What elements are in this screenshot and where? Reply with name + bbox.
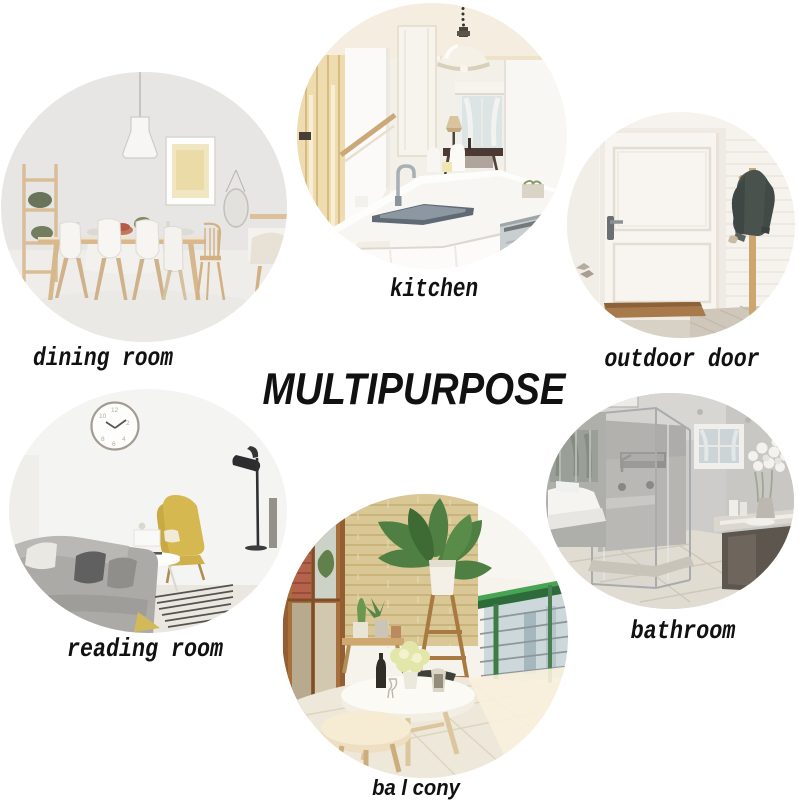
svg-text:8: 8 bbox=[101, 436, 105, 443]
svg-text:dining room: dining room bbox=[33, 344, 174, 374]
svg-text:6: 6 bbox=[112, 441, 116, 448]
svg-text:10: 10 bbox=[99, 413, 107, 420]
svg-text:kitchen: kitchen bbox=[390, 275, 478, 305]
svg-text:bathroom: bathroom bbox=[631, 617, 736, 646]
svg-text:ba l cony: ba l cony bbox=[372, 776, 461, 800]
svg-text:outdoor door: outdoor door bbox=[604, 345, 759, 374]
svg-text:2: 2 bbox=[126, 420, 130, 427]
svg-text:reading room: reading room bbox=[67, 635, 224, 664]
svg-text:4: 4 bbox=[122, 436, 126, 443]
svg-text:12: 12 bbox=[111, 407, 119, 414]
svg-text:MULTIPURPOSE: MULTIPURPOSE bbox=[263, 363, 567, 413]
